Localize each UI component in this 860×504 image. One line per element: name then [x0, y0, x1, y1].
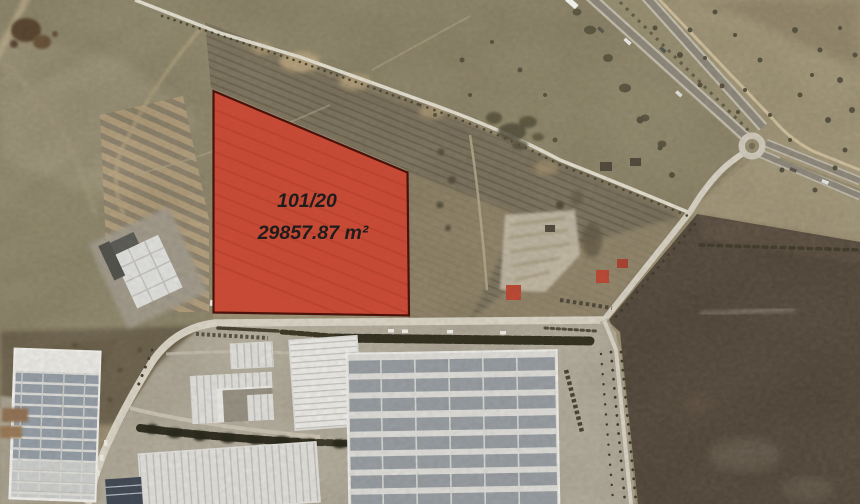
svg-text:29857.87 m²: 29857.87 m²	[257, 222, 369, 244]
svg-text:101/20: 101/20	[277, 190, 337, 212]
